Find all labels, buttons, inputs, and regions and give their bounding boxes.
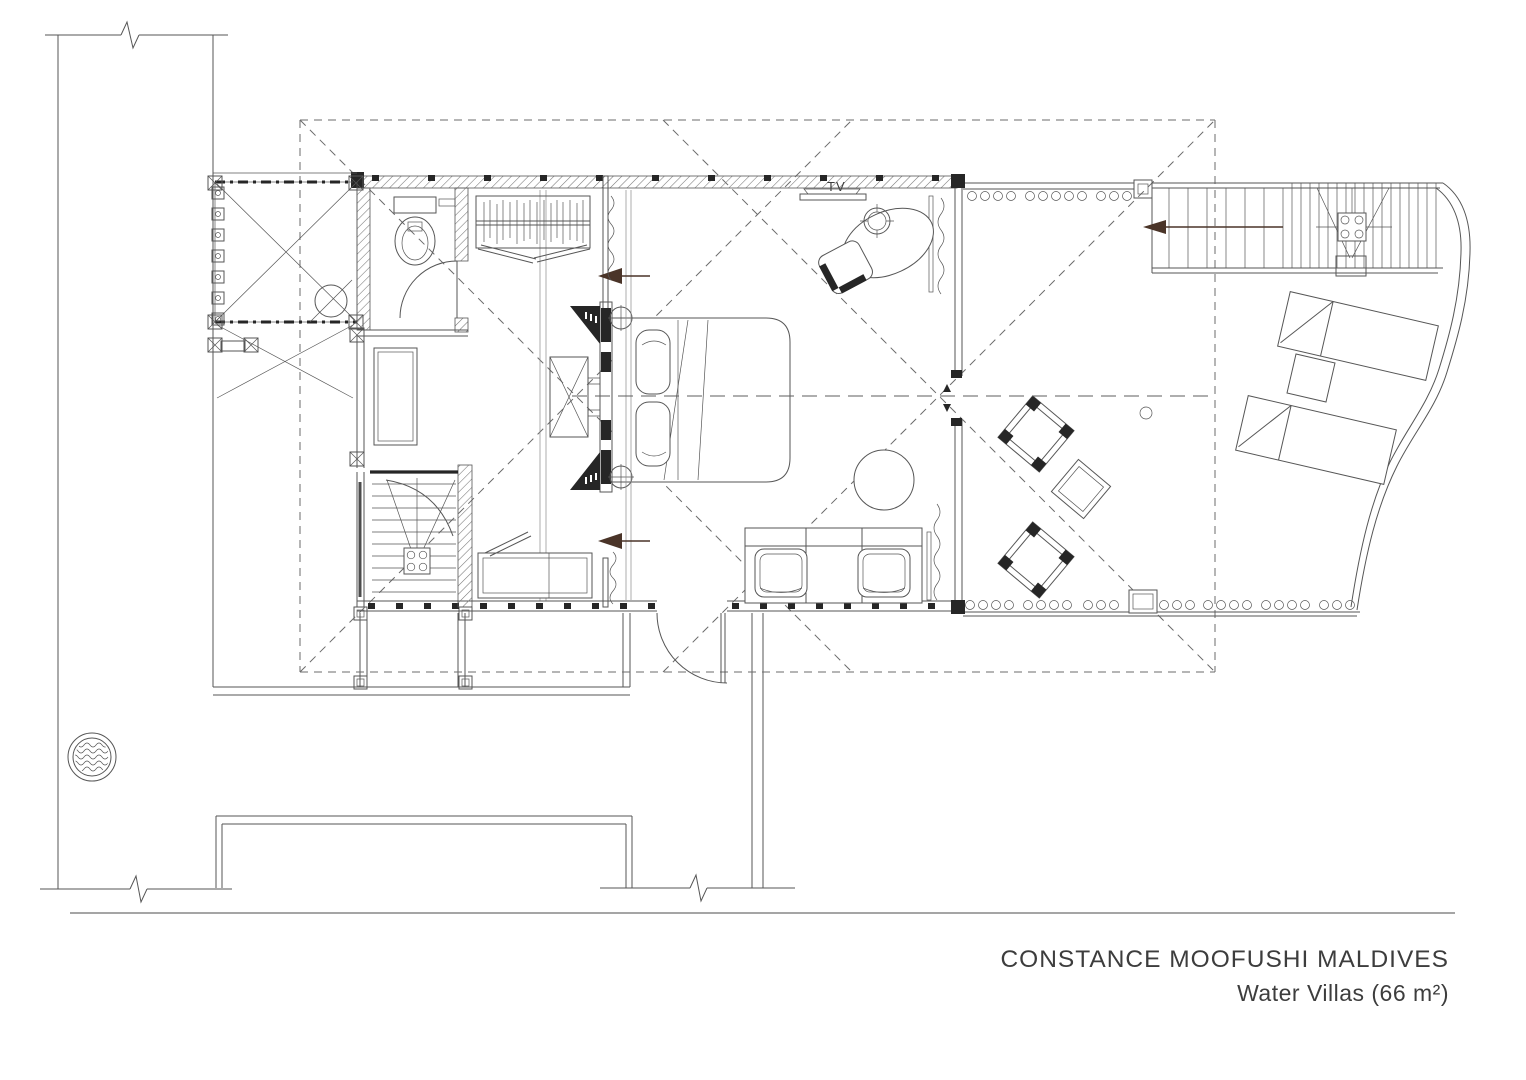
door-slide-arrow [943, 404, 951, 412]
enclosure-cross [217, 184, 355, 320]
corner-post [951, 174, 965, 188]
coffee-table [854, 450, 914, 510]
walkway-stub [360, 613, 465, 687]
door-slide-arrow [943, 384, 951, 392]
deck-armchair [998, 522, 1074, 598]
bed [570, 302, 790, 492]
deck-shower-icon [1316, 188, 1392, 276]
water-access-symbol [68, 733, 116, 781]
entrance-walkway [752, 613, 763, 888]
enclosure-drain [310, 280, 352, 322]
toilet [394, 197, 455, 265]
enclosure-posts [212, 187, 224, 325]
resort-title: CONSTANCE MOOFUSHI MALDIVES [1000, 946, 1449, 973]
rail-post [1134, 180, 1152, 198]
sofa-cushion [858, 549, 910, 597]
ground-break-lines [40, 875, 795, 902]
right-wall [955, 176, 962, 613]
deck-drain [1140, 407, 1152, 419]
hangers [484, 200, 583, 244]
deck [963, 180, 1470, 616]
sofa [745, 528, 922, 603]
pillow [636, 402, 670, 466]
nightstand [570, 306, 600, 344]
break-symbol [121, 22, 139, 48]
wc-door-arc [400, 261, 457, 318]
luggage-bench [550, 357, 600, 437]
bench [478, 532, 592, 598]
tv-label: TV [827, 179, 846, 194]
dressing-area [374, 348, 600, 445]
deck-side-table [1051, 459, 1110, 518]
villa: TV [208, 172, 965, 683]
wardrobe [476, 196, 590, 263]
corner-post [951, 600, 965, 614]
shower-slats [372, 484, 456, 592]
nightstand [570, 452, 600, 490]
ceiling-line [540, 190, 546, 601]
floor-plan-sheet: TV [0, 0, 1526, 1080]
villa-subtitle: Water Villas (66 m²) [1237, 980, 1449, 1006]
lounger-table [1287, 354, 1335, 402]
railing-top [968, 192, 1132, 201]
outdoor-shower-enclosure [208, 173, 363, 398]
floor-plan-drawing: TV [0, 0, 1526, 1080]
shower-room [370, 465, 472, 607]
railing-bottom [966, 601, 1355, 610]
wc-room [357, 188, 468, 336]
enclosure-gate [208, 338, 258, 352]
deck-curved-edge [1351, 183, 1470, 610]
sea-stairs [1143, 183, 1443, 276]
wall-studs [368, 603, 959, 609]
walkway-posts [354, 607, 472, 689]
deck-armchair [998, 396, 1074, 472]
stair-treads [1169, 188, 1283, 268]
sun-lounger [1236, 396, 1397, 485]
glazing-bar [927, 532, 931, 600]
vanity-table [374, 348, 417, 445]
sofa-cushion [755, 549, 807, 597]
title-block: CONSTANCE MOOFUSHI MALDIVES Water Villas… [70, 913, 1455, 1006]
lower-jetty [216, 816, 632, 888]
pillow [636, 330, 670, 394]
